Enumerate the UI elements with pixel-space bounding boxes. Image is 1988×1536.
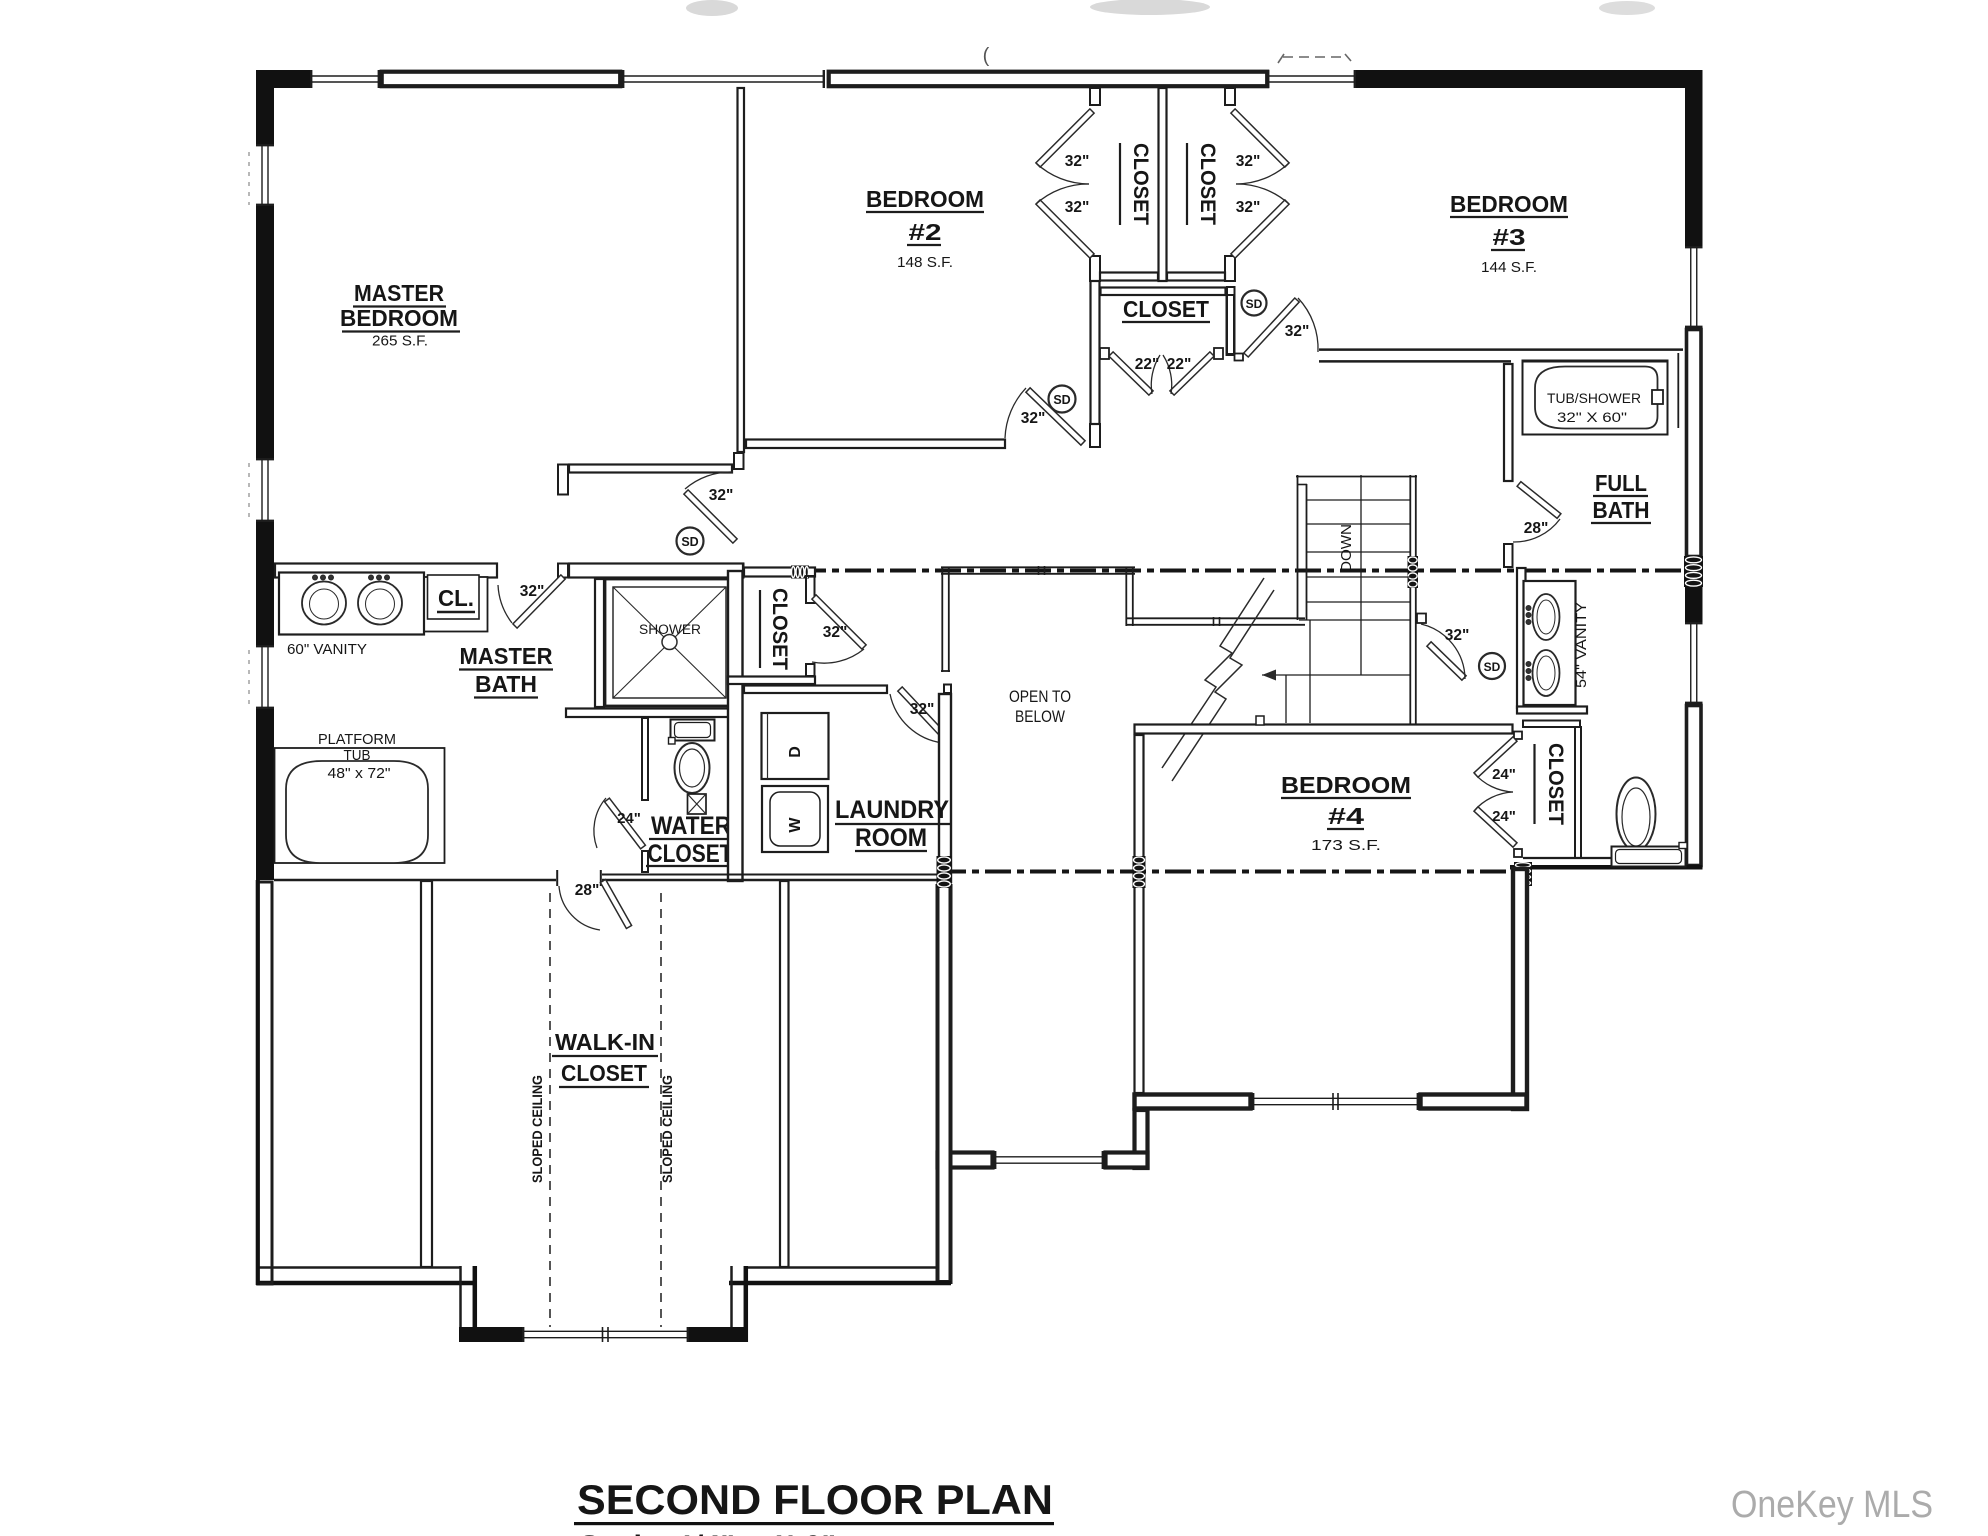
svg-text:MASTER: MASTER (354, 280, 444, 306)
svg-text:SD: SD (1053, 393, 1070, 407)
svg-text:TUB: TUB (344, 748, 371, 764)
svg-text:54" VANITY: 54" VANITY (1574, 602, 1590, 688)
svg-text:32": 32" (709, 487, 734, 504)
svg-text:CLOSET: CLOSET (648, 840, 733, 868)
svg-text:LAUNDRY: LAUNDRY (835, 796, 949, 824)
svg-text:WALK-IN: WALK-IN (555, 1029, 655, 1055)
svg-text:SD: SD (1484, 660, 1501, 674)
svg-text:CLOSET: CLOSET (561, 1060, 647, 1086)
svg-text:CL.: CL. (438, 585, 474, 611)
svg-text:32": 32" (910, 701, 935, 718)
svg-text:TUB/SHOWER: TUB/SHOWER (1547, 391, 1641, 406)
svg-text:148 S.F.: 148 S.F. (897, 254, 953, 271)
svg-text:SLOPED CEILING: SLOPED CEILING (660, 1075, 675, 1183)
svg-text:OneKey MLS: OneKey MLS (1731, 1484, 1933, 1526)
svg-text:SLOPED CEILING: SLOPED CEILING (530, 1075, 545, 1183)
svg-text:OPEN TO: OPEN TO (1009, 687, 1071, 706)
svg-text:28": 28" (1524, 520, 1549, 537)
svg-text:ROOM: ROOM (855, 824, 927, 852)
svg-text:SHOWER: SHOWER (639, 622, 701, 637)
svg-text:32": 32" (1445, 627, 1470, 644)
svg-text:32": 32" (1236, 153, 1261, 170)
svg-text:32": 32" (1065, 199, 1090, 216)
svg-text:CLOSET: CLOSET (1123, 296, 1209, 322)
svg-text:CLOSET: CLOSET (768, 588, 791, 670)
svg-text:SD: SD (1246, 297, 1263, 311)
svg-text:SD: SD (681, 535, 698, 549)
svg-text:32": 32" (1065, 153, 1090, 170)
svg-text:24": 24" (617, 810, 641, 827)
svg-text:BEDROOM: BEDROOM (1450, 191, 1568, 217)
svg-text:24": 24" (1492, 808, 1516, 825)
svg-text:DOWN: DOWN (1338, 524, 1355, 572)
svg-text:SECOND FLOOR PLAN: SECOND FLOOR PLAN (577, 1476, 1053, 1523)
svg-text:Scale: 1/4" = 1'-0": Scale: 1/4" = 1'-0" (579, 1530, 836, 1536)
svg-text:24": 24" (1492, 766, 1516, 783)
svg-text:BATH: BATH (475, 671, 537, 697)
svg-text:D: D (787, 746, 804, 758)
svg-text:22": 22" (1167, 356, 1192, 373)
svg-text:W: W (787, 817, 804, 833)
svg-text:CLOSET: CLOSET (1196, 143, 1219, 225)
svg-text:32": 32" (1021, 410, 1046, 427)
svg-text:BELOW: BELOW (1015, 707, 1065, 726)
svg-text:28": 28" (575, 882, 600, 899)
svg-text:(: ( (983, 45, 990, 67)
svg-text:32" X 60": 32" X 60" (1557, 410, 1627, 425)
svg-text:BATH: BATH (1593, 497, 1650, 523)
svg-text:32": 32" (1236, 199, 1261, 216)
svg-text:WATER: WATER (651, 812, 731, 840)
svg-text:FULL: FULL (1595, 470, 1647, 496)
svg-text:#4: #4 (1328, 803, 1364, 829)
svg-text:265 S.F.: 265 S.F. (372, 333, 428, 350)
svg-text:144 S.F.: 144 S.F. (1481, 259, 1537, 276)
svg-text:60" VANITY: 60" VANITY (287, 642, 367, 658)
svg-text:22": 22" (1135, 356, 1160, 373)
svg-text:PLATFORM: PLATFORM (318, 732, 396, 748)
svg-text:BEDROOM: BEDROOM (1281, 772, 1411, 798)
svg-text:BEDROOM: BEDROOM (340, 305, 458, 331)
svg-text:48" x 72": 48" x 72" (328, 766, 391, 782)
svg-text:#2: #2 (909, 219, 942, 245)
svg-text:MASTER: MASTER (460, 643, 553, 669)
svg-text:BEDROOM: BEDROOM (866, 186, 984, 212)
svg-text:32": 32" (1285, 323, 1310, 340)
svg-text:32": 32" (823, 624, 848, 641)
svg-text:#3: #3 (1493, 224, 1526, 250)
svg-text:CLOSET: CLOSET (1129, 143, 1152, 225)
svg-text:173 S.F.: 173 S.F. (1311, 837, 1381, 854)
svg-text:CLOSET: CLOSET (1544, 743, 1567, 825)
svg-text:32": 32" (520, 583, 545, 600)
